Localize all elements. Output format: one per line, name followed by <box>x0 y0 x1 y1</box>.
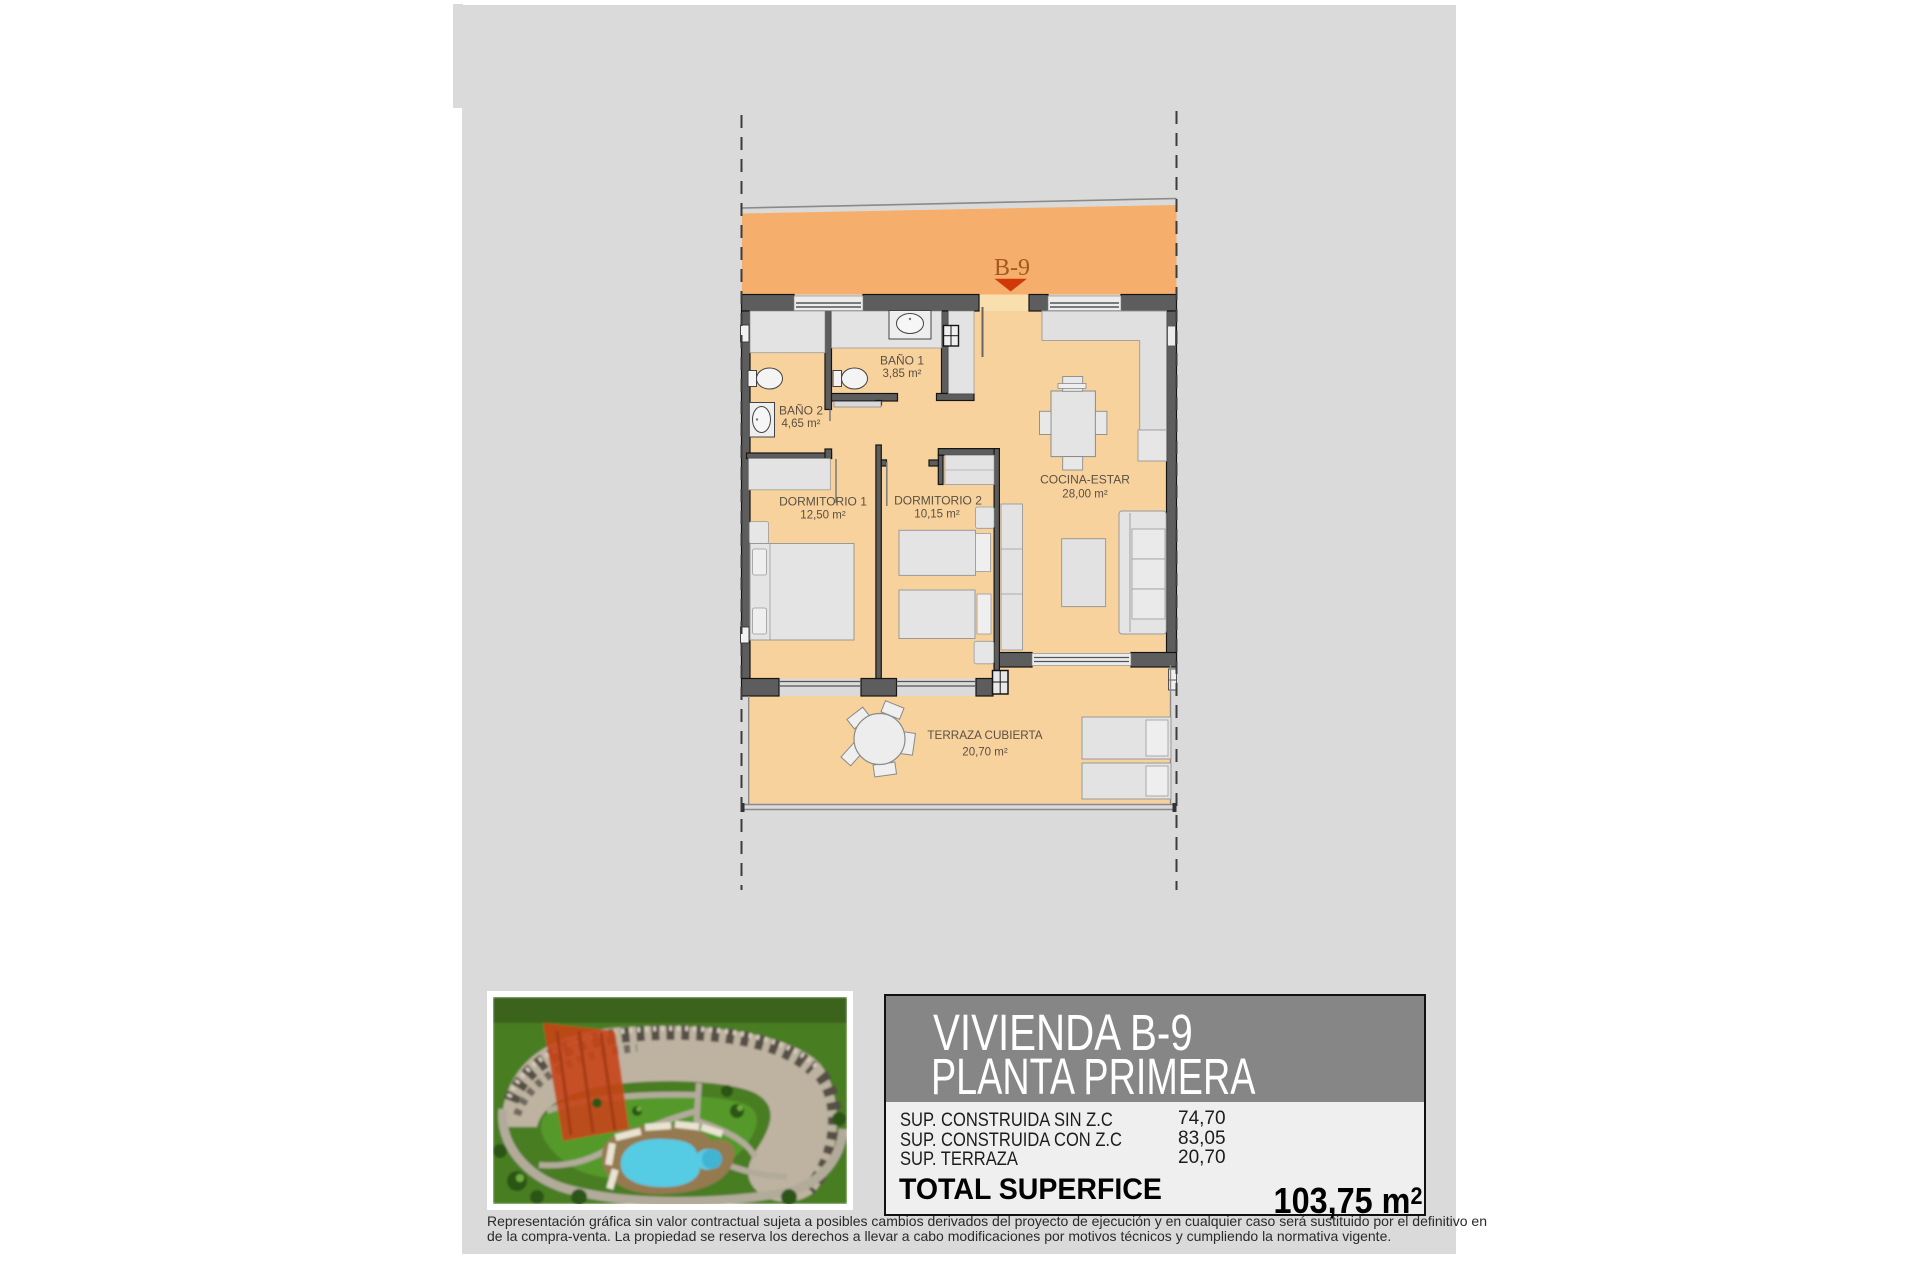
svg-text:20,70 m²: 20,70 m² <box>962 747 1008 759</box>
svg-text:4,65 m²: 4,65 m² <box>782 418 821 430</box>
svg-text:COCINA-ESTAR: COCINA-ESTAR <box>1040 473 1130 487</box>
svg-text:28,00 m²: 28,00 m² <box>1062 489 1108 501</box>
svg-text:DORMITORIO 2: DORMITORIO 2 <box>894 494 982 508</box>
svg-text:TERRAZA CUBIERTA: TERRAZA CUBIERTA <box>927 729 1042 742</box>
svg-text:10,15 m²: 10,15 m² <box>914 509 960 521</box>
svg-text:BAÑO 2: BAÑO 2 <box>779 404 823 418</box>
svg-text:B-9: B-9 <box>994 255 1030 281</box>
svg-text:BAÑO 1: BAÑO 1 <box>880 354 924 368</box>
svg-text:12,50 m²: 12,50 m² <box>800 510 846 522</box>
svg-text:3,85 m²: 3,85 m² <box>883 368 922 380</box>
svg-text:DORMITORIO 1: DORMITORIO 1 <box>779 495 867 509</box>
